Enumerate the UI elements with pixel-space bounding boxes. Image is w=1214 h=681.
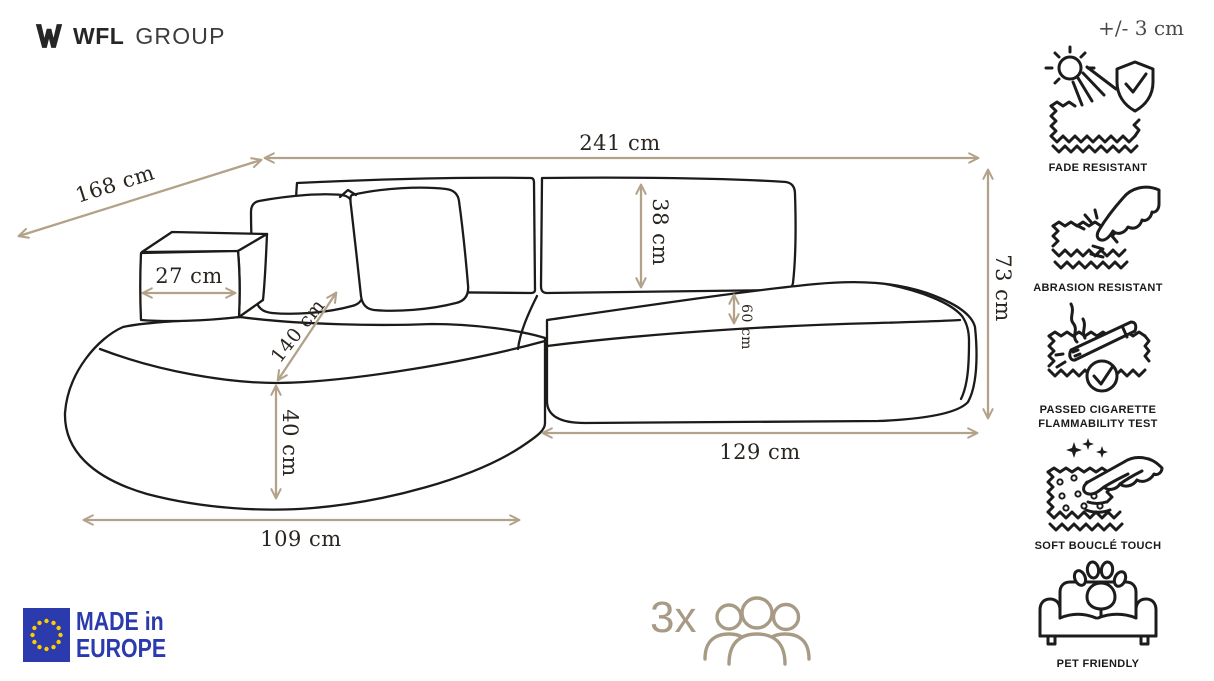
made-in-europe-badge: MADE in EUROPE — [23, 608, 186, 662]
capacity-count: 3x — [650, 586, 696, 650]
cigarette-test-icon — [1035, 298, 1161, 398]
infographic-canvas: 241 cm 168 cm 27 cm 140 cm 38 cm 60 cm 7… — [0, 0, 1214, 681]
feature-label: PET FRIENDLY — [1057, 657, 1140, 671]
feature-label: FADE RESISTANT — [1049, 161, 1148, 175]
feature-fade-resistant: FADE RESISTANT — [1012, 44, 1184, 175]
feature-abrasion-resistant: ABRASION RESISTANT — [1012, 184, 1184, 295]
three-people-icon — [702, 586, 824, 666]
seating-capacity: 3x — [650, 586, 824, 666]
dimension-label-front-height: 40 cm — [278, 409, 302, 477]
feature-cigarette-test: PASSED CIGARETTE FLAMMABILITY TEST — [1012, 298, 1184, 431]
dimension-label-arm-width: 27 cm — [155, 264, 223, 288]
dimension-label-seat-length: 129 cm — [719, 440, 800, 464]
logo-text-light: GROUP — [135, 23, 225, 50]
brand-logo: WFLGROUP — [34, 22, 226, 50]
feature-label: SOFT BOUCLÉ TOUCH — [1035, 539, 1162, 553]
abrasion-hand-icon — [1035, 184, 1161, 276]
feature-pet-friendly: PET FRIENDLY — [1012, 556, 1184, 671]
feature-label-line2: FLAMMABILITY TEST — [1038, 417, 1157, 431]
made-in-text-line2: EUROPE — [76, 635, 166, 662]
dimension-label-total-width: 241 cm — [579, 131, 660, 155]
feature-soft-boucle: SOFT BOUCLÉ TOUCH — [1012, 438, 1184, 553]
sun-shield-icon — [1035, 44, 1161, 156]
soft-touch-icon — [1032, 438, 1164, 534]
sofa-outline — [65, 178, 977, 510]
wfl-monogram-icon — [34, 22, 64, 50]
eu-flag-icon — [23, 608, 70, 662]
tolerance-note: +/- 3 cm — [1098, 16, 1184, 40]
logo-text-bold: WFL — [73, 23, 124, 50]
feature-label: ABRASION RESISTANT — [1033, 281, 1163, 295]
feature-label-line1: PASSED CIGARETTE — [1040, 403, 1157, 417]
pet-sofa-icon — [1032, 556, 1164, 652]
dimension-label-chaise-width: 109 cm — [260, 527, 341, 551]
dimension-label-backrest-height: 38 cm — [648, 198, 672, 266]
made-in-text-line1: MADE in — [76, 608, 166, 635]
dimension-label-seat-gap: 60 cm — [738, 304, 754, 350]
